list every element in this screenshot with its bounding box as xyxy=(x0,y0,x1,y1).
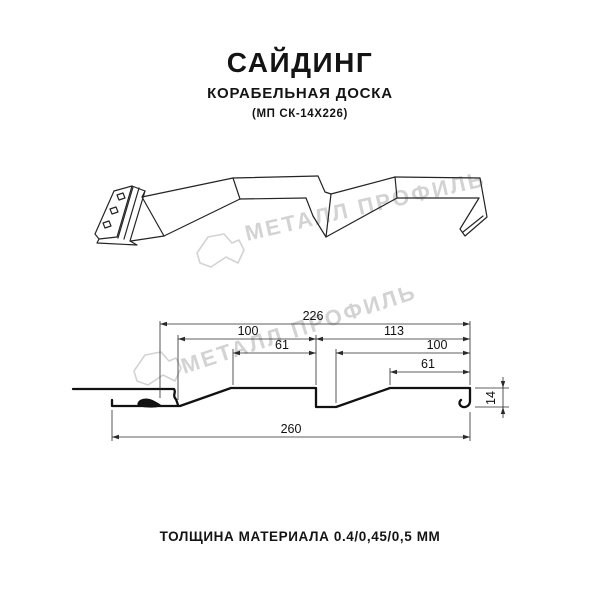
thickness-note: ТОЛЩИНА МАТЕРИАЛА 0.4/0,45/0,5 ММ xyxy=(0,529,600,544)
nail-hole-icon xyxy=(103,221,111,228)
product-drawing-page: САЙДИНГ КОРАБЕЛЬНАЯ ДОСКА (МП СК-14Х226)… xyxy=(0,0,600,600)
lock-curl xyxy=(138,399,161,407)
profile-cross-section xyxy=(73,388,470,407)
dim-label-14: 14 xyxy=(484,391,498,405)
watermark-top: МЕТАЛЛ ПРОФИЛЬ xyxy=(197,166,488,267)
dim-label-100-left: 100 xyxy=(238,324,259,338)
nail-hole-icon xyxy=(110,207,118,214)
dim-label-61-right: 61 xyxy=(421,357,435,371)
watermark-bottom: МЕТАЛЛ ПРОФИЛЬ xyxy=(134,279,420,385)
dim-label-61-left: 61 xyxy=(275,338,289,352)
drawings-canvas: МЕТАЛЛ ПРОФИЛЬ xyxy=(0,0,600,600)
metall-profil-logo-icon xyxy=(197,234,244,267)
dim-label-260: 260 xyxy=(281,422,302,436)
dim-label-100-right: 100 xyxy=(427,338,448,352)
dim-label-113: 113 xyxy=(384,324,404,338)
metall-profil-logo-icon xyxy=(134,352,181,385)
dim-label-226: 226 xyxy=(303,309,324,323)
nail-hole-icon xyxy=(117,193,125,200)
